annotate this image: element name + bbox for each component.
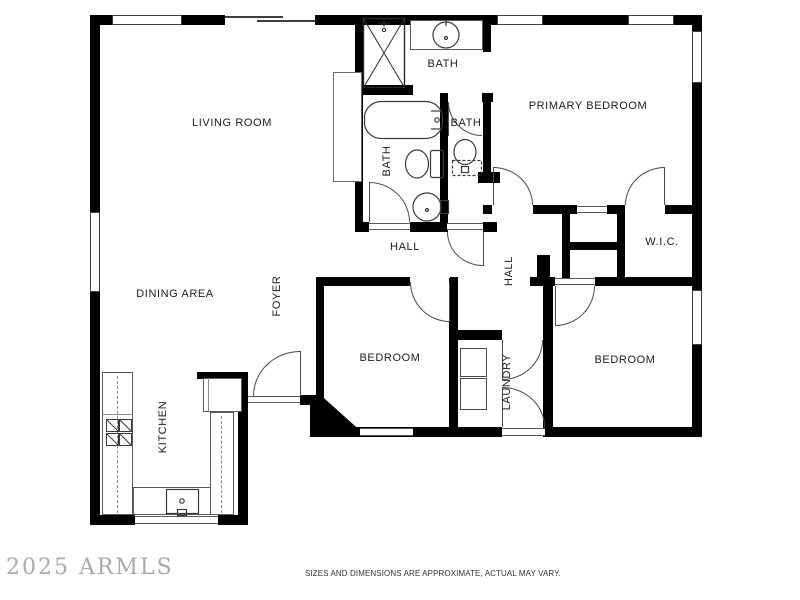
wall — [90, 292, 100, 525]
door-arc — [369, 182, 410, 222]
door-leaf — [300, 351, 301, 396]
door-arc — [555, 286, 595, 326]
dining-area-label: DINING AREA — [136, 288, 214, 300]
door-threshold — [369, 223, 410, 230]
door-leaf — [483, 232, 484, 266]
hall-main-label: HALL — [390, 241, 420, 253]
sliding-door — [225, 16, 283, 18]
door-threshold — [502, 428, 545, 436]
wall — [90, 15, 100, 212]
wall — [533, 205, 577, 214]
hall-bedroom-label: HALL — [503, 256, 515, 286]
bath-top-label: BATH — [428, 58, 459, 70]
window — [135, 516, 218, 524]
foyer-label: FOYER — [271, 276, 283, 317]
counter-dashline — [117, 376, 118, 513]
watermark: 2025 ARMLS — [6, 555, 174, 580]
window — [692, 290, 702, 345]
disclaimer-text: SIZES AND DIMENSIONS ARE APPROXIMATE, AC… — [305, 569, 561, 578]
wall — [483, 205, 492, 214]
door-threshold — [248, 396, 300, 403]
bath-vanity — [410, 20, 483, 50]
refrigerator-line — [208, 378, 209, 412]
wall — [316, 277, 410, 286]
wall — [182, 15, 225, 25]
wall — [483, 15, 491, 52]
window — [628, 15, 674, 25]
closet-opening — [577, 206, 607, 213]
door-leaf — [555, 286, 556, 326]
door-arc — [447, 232, 483, 266]
door-arc — [493, 167, 533, 205]
window — [692, 31, 702, 83]
dryer — [460, 378, 487, 410]
wall — [410, 222, 447, 232]
wall — [483, 222, 497, 232]
wall — [355, 85, 413, 95]
sliding-door — [257, 20, 315, 22]
living-room-label: LIVING ROOM — [192, 117, 272, 129]
shower — [364, 19, 405, 88]
primary-bedroom-label: PRIMARY BEDROOM — [529, 100, 648, 112]
door-arc — [410, 282, 450, 322]
wall-diagonal — [310, 395, 358, 437]
door-leaf — [369, 182, 370, 222]
wall — [692, 83, 702, 290]
bath-hall-label: BATH — [381, 146, 393, 177]
wall — [537, 255, 550, 277]
floor-plan: LIVING ROOM DINING AREA KITCHEN FOYER BA… — [0, 0, 800, 600]
door-threshold — [555, 278, 595, 285]
door-leaf — [493, 167, 494, 205]
washer — [460, 348, 487, 377]
counter-dashline — [221, 416, 222, 513]
wall — [562, 242, 625, 250]
bathtub — [365, 102, 443, 139]
toilet — [453, 140, 482, 176]
wall — [595, 277, 702, 286]
door-leaf — [449, 282, 450, 322]
wall — [692, 345, 702, 437]
wall — [545, 427, 702, 437]
door-arc — [253, 351, 300, 396]
bedroom-right-label: BEDROOM — [594, 354, 655, 366]
toilet — [406, 150, 444, 178]
kitchen-counter-bottom — [133, 487, 218, 515]
wall — [440, 93, 448, 232]
door-leaf — [448, 102, 449, 136]
wall — [543, 15, 628, 25]
laundry-label: LAUNDRY — [501, 354, 513, 411]
bath-ensuite-label: BATH — [451, 117, 482, 129]
window — [112, 15, 182, 25]
wall — [692, 15, 702, 31]
wall — [90, 515, 135, 525]
window — [497, 15, 543, 25]
door-threshold — [447, 223, 483, 230]
kitchen-counter-right — [210, 412, 234, 515]
window — [90, 212, 100, 292]
door-arc — [625, 167, 665, 205]
wic-label: W.I.C. — [645, 236, 679, 248]
wall — [449, 278, 458, 437]
kitchen-label: KITCHEN — [157, 401, 169, 453]
window — [360, 428, 413, 436]
bedroom-left-label: BEDROOM — [359, 352, 420, 364]
wall — [543, 277, 553, 437]
built-in-cabinet — [333, 72, 362, 182]
wall — [455, 330, 502, 340]
door-leaf — [664, 167, 665, 205]
wall — [355, 222, 369, 232]
wall — [665, 205, 702, 214]
wall — [483, 93, 491, 183]
